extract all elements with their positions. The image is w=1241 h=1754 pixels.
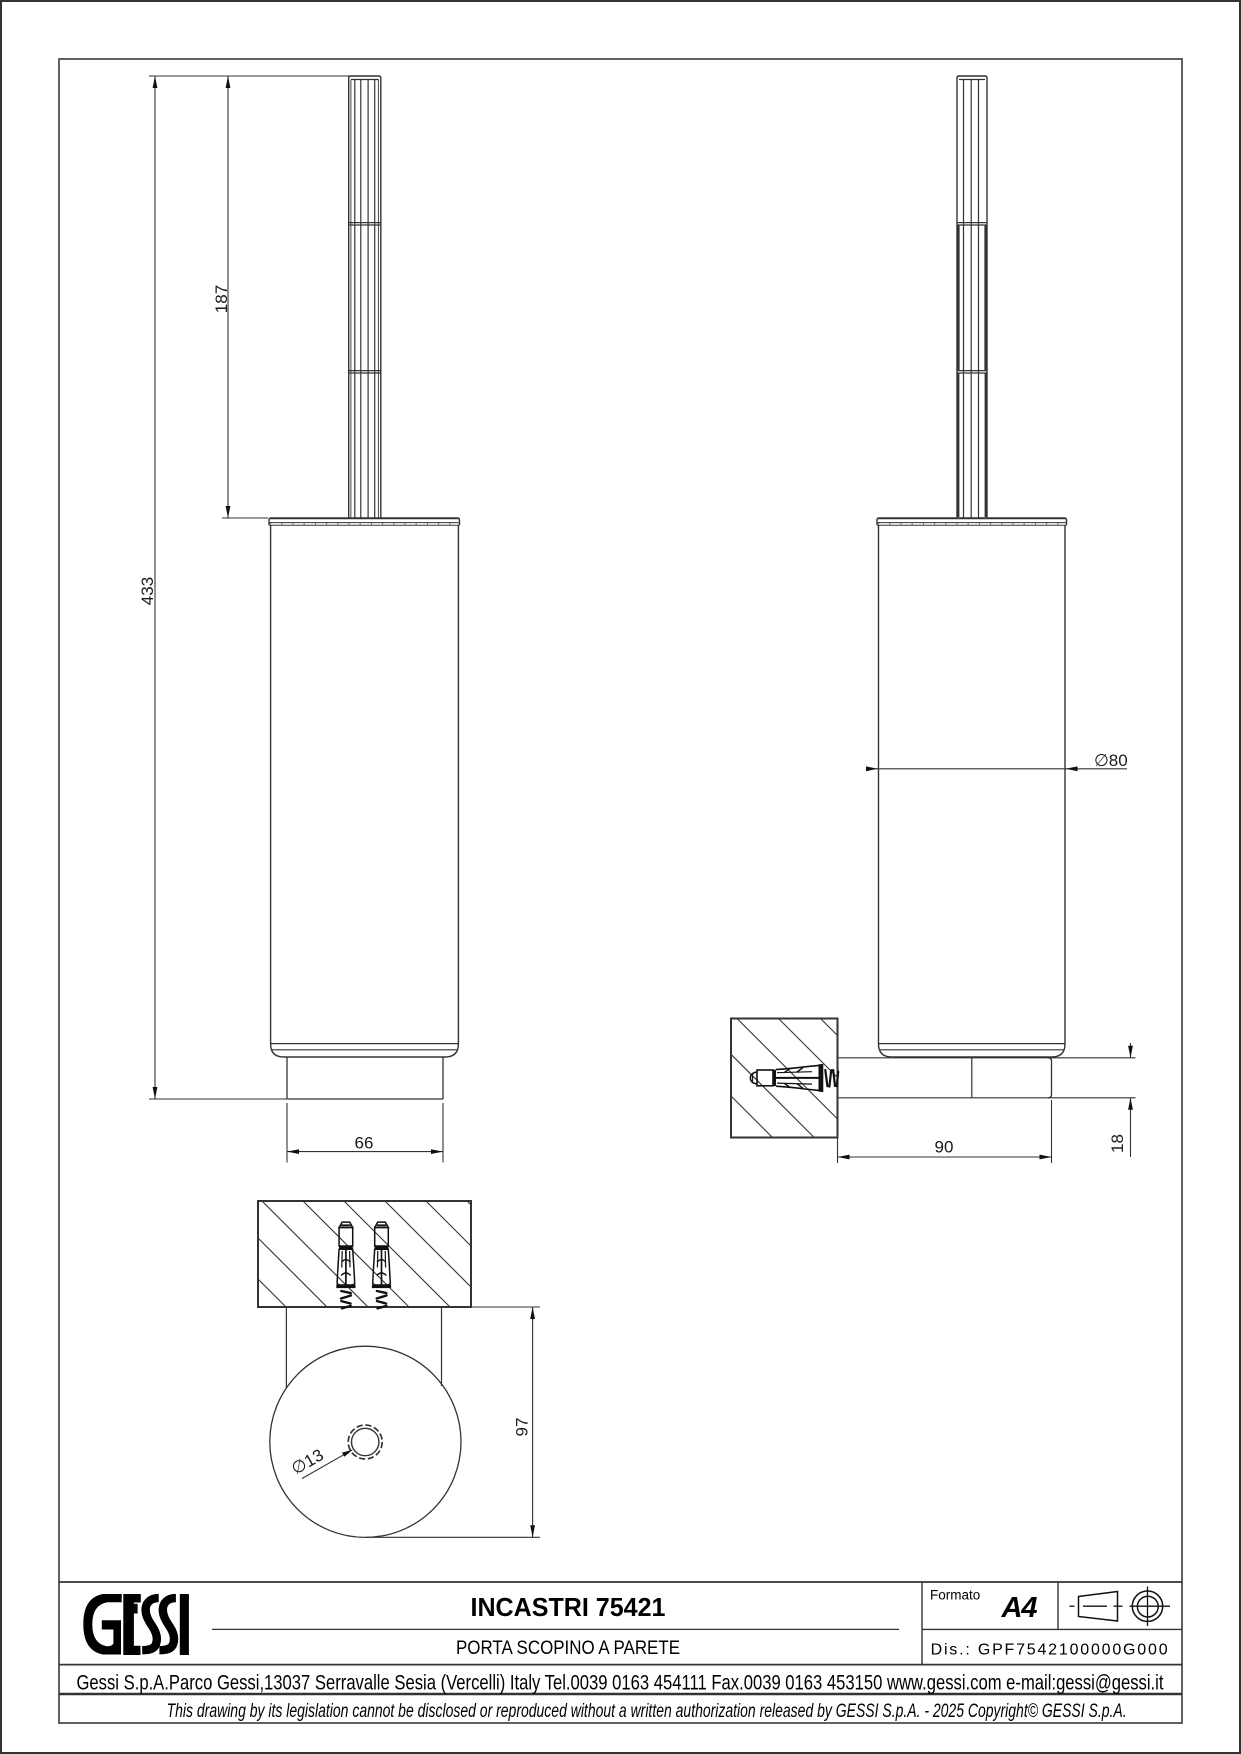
svg-text:187: 187 — [212, 285, 231, 313]
svg-text:18: 18 — [1108, 1134, 1127, 1153]
svg-text:Dis.: GPF7542100000G000: Dis.: GPF7542100000G000 — [931, 1642, 1168, 1659]
svg-text:INCASTRI 75421: INCASTRI 75421 — [471, 1592, 666, 1622]
svg-text:97: 97 — [513, 1418, 532, 1437]
svg-text:This drawing by its legislatio: This drawing by its legislation cannot b… — [167, 1700, 1127, 1722]
svg-text:90: 90 — [935, 1138, 954, 1157]
svg-text:A4: A4 — [1001, 1592, 1038, 1624]
svg-text:Formato: Formato — [930, 1588, 980, 1603]
svg-text:∅80: ∅80 — [1094, 751, 1128, 770]
svg-text:66: 66 — [355, 1134, 374, 1153]
svg-text:Gessi S.p.A.Parco Gessi,13037: Gessi S.p.A.Parco Gessi,13037 Serravalle… — [77, 1671, 1164, 1695]
svg-text:433: 433 — [138, 577, 157, 605]
svg-text:PORTA SCOPINO A PARETE: PORTA SCOPINO A PARETE — [456, 1637, 680, 1659]
